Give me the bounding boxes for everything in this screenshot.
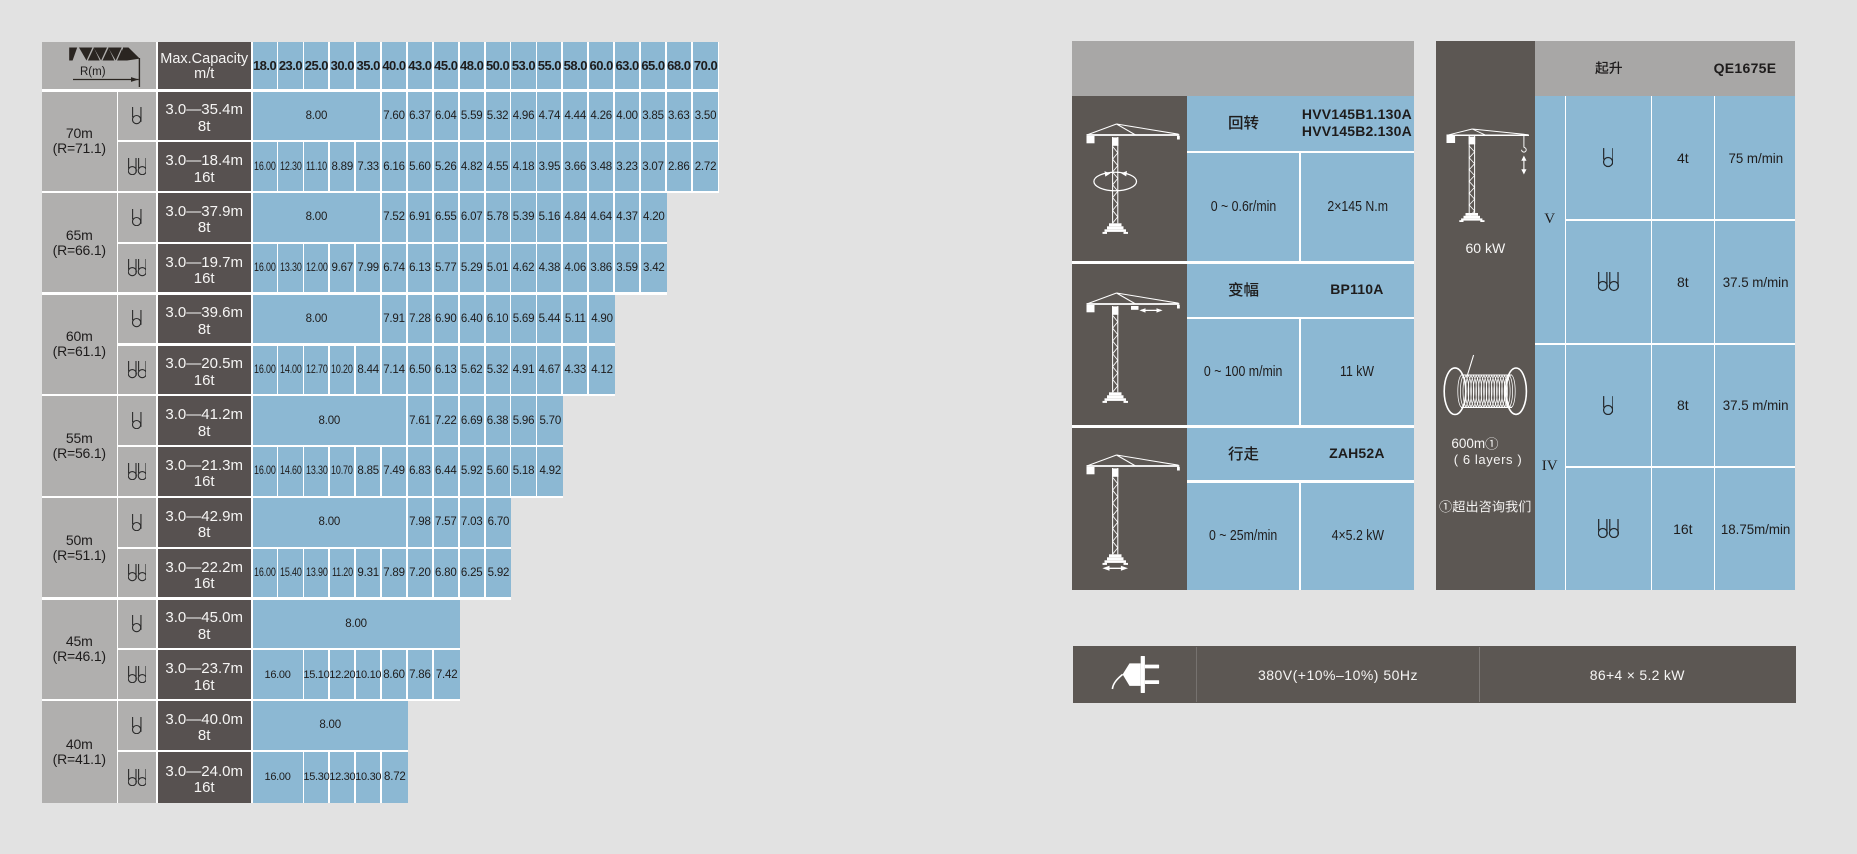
svg-text:R(m): R(m): [80, 66, 106, 78]
